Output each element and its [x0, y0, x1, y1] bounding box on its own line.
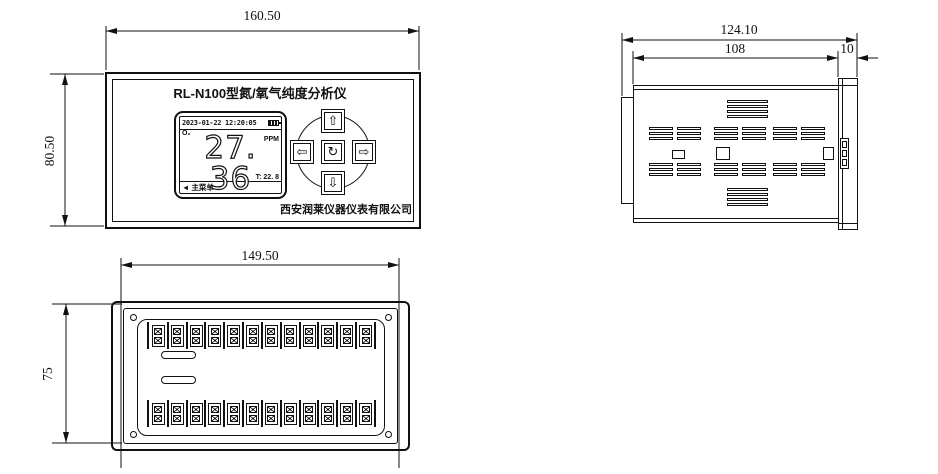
terminal-block: [300, 400, 319, 427]
terminal-screw-pair: [284, 325, 297, 347]
vent-slat: [742, 132, 766, 135]
screw-x-icon: [305, 406, 313, 413]
main-reading: 27. 36: [180, 133, 281, 194]
terminal-block: [149, 322, 168, 349]
dim-side-overall: 124.10: [709, 22, 769, 38]
vent-slat: [714, 132, 738, 135]
terminal-block: [318, 400, 337, 427]
terminal-block: [281, 400, 300, 427]
vent-group: [742, 127, 766, 140]
screw-x-icon: [173, 415, 181, 422]
left-arrow-icon: ⇦: [293, 143, 311, 161]
enter-button: ↻: [321, 140, 345, 164]
dim-side-bezel: 10: [833, 41, 861, 57]
vent-slat: [727, 198, 768, 201]
screw-x-icon: [211, 406, 219, 413]
vent-slat: [773, 137, 797, 140]
down-button: ⇩: [321, 171, 345, 195]
vent-slat: [649, 132, 673, 135]
screw-x-icon: [249, 406, 257, 413]
vent-group: [677, 163, 701, 176]
screw-x-icon: [211, 415, 219, 422]
up-button: ⇧: [321, 109, 345, 133]
terminal-screw-pair: [265, 325, 278, 347]
device-title: RL-N100型氮/氧气纯度分析仪: [105, 83, 415, 102]
dim-front-height: 80.50: [42, 121, 58, 181]
vent-group: [773, 127, 797, 140]
screw-x-icon: [173, 406, 181, 413]
screw-x-icon: [343, 415, 351, 422]
vent-slat: [801, 168, 825, 171]
terminal-screw-pair: [246, 325, 259, 347]
vent-slot: [161, 376, 196, 384]
vent-slat: [801, 132, 825, 135]
vent-slat: [801, 163, 825, 166]
screw-x-icon: [362, 328, 370, 335]
temperature-reading: T: 22. 8: [256, 174, 279, 181]
terminal-screw-pair: [227, 325, 240, 347]
terminal-block: [356, 322, 375, 349]
terminal-block: [281, 322, 300, 349]
screw-x-icon: [230, 415, 238, 422]
vent-slat: [714, 137, 738, 140]
mounting-latch: [823, 147, 834, 160]
terminal-row-bottom: [147, 400, 375, 427]
screw-x-icon: [286, 415, 294, 422]
vent-group: [649, 163, 673, 176]
vent-slat: [773, 132, 797, 135]
vent-slat: [714, 163, 738, 166]
cycle-icon: ↻: [324, 143, 342, 161]
vent-slat: [677, 137, 701, 140]
vent-group: [801, 127, 825, 140]
vent-slat: [649, 173, 673, 176]
vent-slat: [677, 132, 701, 135]
terminal-block: [168, 322, 187, 349]
terminal-block: [337, 322, 356, 349]
screw-x-icon: [305, 337, 313, 344]
side-connector: [840, 138, 849, 169]
screw-x-icon: [267, 415, 275, 422]
lcd-datetime: 2023-01-22 12:20:05: [182, 119, 256, 127]
screw-x-icon: [286, 406, 294, 413]
screw-x-icon: [324, 406, 332, 413]
terminal-screw-pair: [303, 325, 316, 347]
screw-x-icon: [211, 328, 219, 335]
terminal-block: [168, 400, 187, 427]
terminal-block: [187, 400, 206, 427]
terminal-screw-pair: [359, 403, 372, 425]
vent-slat: [727, 193, 768, 196]
terminal-screw-pair: [152, 325, 165, 347]
screw-x-icon: [343, 406, 351, 413]
dim-front-width: 160.50: [232, 8, 292, 24]
vent-slat: [727, 105, 768, 108]
vent-group: [714, 127, 738, 140]
screw-x-icon: [249, 328, 257, 335]
vent-slat: [773, 173, 797, 176]
screw-x-icon: [324, 415, 332, 422]
screw-x-icon: [154, 337, 162, 344]
dim-side-case: 108: [705, 41, 765, 57]
screw-x-icon: [192, 328, 200, 335]
vent-group: [742, 163, 766, 176]
vent-slat: [649, 168, 673, 171]
terminal-block: [205, 322, 224, 349]
corner-screw-icon: [130, 314, 137, 321]
screw-x-icon: [192, 415, 200, 422]
vent-group-top: [727, 100, 768, 118]
screw-x-icon: [305, 328, 313, 335]
screw-x-icon: [192, 406, 200, 413]
terminal-block: [356, 400, 375, 427]
screw-x-icon: [267, 328, 275, 335]
vent-slat: [727, 115, 768, 118]
vent-slat: [714, 127, 738, 130]
terminal-block: [205, 400, 224, 427]
terminal-block: [224, 322, 243, 349]
vent-slat: [742, 163, 766, 166]
dim-back-height: 75: [40, 354, 56, 394]
screw-x-icon: [154, 406, 162, 413]
mounting-latch: [672, 150, 685, 159]
screw-x-icon: [362, 415, 370, 422]
vent-slat: [742, 173, 766, 176]
screw-x-icon: [230, 406, 238, 413]
right-button: ⇨: [352, 140, 376, 164]
vent-slat: [727, 188, 768, 191]
vent-slat: [714, 173, 738, 176]
screw-x-icon: [286, 328, 294, 335]
technical-drawing: RL-N100型氮/氧气纯度分析仪 2023-01-22 12:20:05 O₂…: [0, 0, 938, 474]
terminal-screw-pair: [152, 403, 165, 425]
vent-slat: [677, 168, 701, 171]
screw-x-icon: [267, 337, 275, 344]
vent-group: [714, 163, 738, 176]
terminal-block: [224, 400, 243, 427]
vent-slat: [742, 168, 766, 171]
vent-slat: [773, 163, 797, 166]
screw-x-icon: [362, 406, 370, 413]
terminal-screw-pair: [190, 403, 203, 425]
bezel-top-line: [839, 85, 857, 86]
screw-x-icon: [154, 328, 162, 335]
vent-slot: [161, 351, 196, 359]
right-arrow-icon: ⇨: [355, 143, 373, 161]
lcd-body: O₂ PPM 27. 36 T: 22. 8: [180, 130, 281, 181]
terminal-screw-pair: [190, 325, 203, 347]
mounting-latch: [716, 147, 730, 160]
terminal-screw-pair: [265, 403, 278, 425]
down-arrow-icon: ⇩: [324, 174, 342, 192]
terminal-screw-pair: [208, 403, 221, 425]
lcd-display-area: 2023-01-22 12:20:05 O₂ PPM 27. 36 T: 22.…: [179, 116, 282, 194]
screw-x-icon: [324, 337, 332, 344]
terminal-screw-pair: [321, 325, 334, 347]
vent-group: [677, 127, 701, 140]
up-arrow-icon: ⇧: [324, 112, 342, 130]
lcd-header: 2023-01-22 12:20:05: [180, 117, 281, 130]
lcd-screen: 2023-01-22 12:20:05 O₂ PPM 27. 36 T: 22.…: [174, 111, 287, 199]
screw-x-icon: [286, 337, 294, 344]
vent-slat: [649, 163, 673, 166]
screw-x-icon: [230, 337, 238, 344]
terminal-block: [243, 322, 262, 349]
vent-slat: [677, 163, 701, 166]
terminal-block: [243, 400, 262, 427]
terminal-screw-pair: [171, 403, 184, 425]
vent-group-bottom: [727, 188, 768, 206]
dim-back-width: 149.50: [230, 248, 290, 264]
terminal-block: [149, 400, 168, 427]
terminal-screw-pair: [321, 403, 334, 425]
screw-x-icon: [192, 337, 200, 344]
vent-slat: [677, 127, 701, 130]
bezel-bottom-line: [839, 223, 857, 224]
case-bottom-lip-line: [634, 218, 838, 219]
vent-slat: [773, 168, 797, 171]
screw-x-icon: [230, 328, 238, 335]
terminal-row-top: [147, 322, 375, 349]
case-top-lip-line: [634, 89, 838, 90]
screw-x-icon: [305, 415, 313, 422]
terminal-block: [300, 322, 319, 349]
vent-slat: [727, 203, 768, 206]
screw-x-icon: [154, 415, 162, 422]
vent-group: [801, 163, 825, 176]
terminal-screw-pair: [171, 325, 184, 347]
left-button: ⇦: [290, 140, 314, 164]
terminal-screw-pair: [340, 325, 353, 347]
vent-slat: [742, 127, 766, 130]
terminal-screw-pair: [303, 403, 316, 425]
vent-slat: [677, 173, 701, 176]
corner-screw-icon: [130, 431, 137, 438]
screw-x-icon: [324, 328, 332, 335]
terminal-screw-pair: [246, 403, 259, 425]
terminal-block: [262, 322, 281, 349]
vent-slat: [727, 110, 768, 113]
vent-slat: [714, 168, 738, 171]
vent-slat: [773, 127, 797, 130]
vent-slat: [742, 137, 766, 140]
vent-slat: [649, 127, 673, 130]
screw-x-icon: [173, 337, 181, 344]
terminal-screw-pair: [208, 325, 221, 347]
vent-slat: [801, 127, 825, 130]
vent-slat: [801, 173, 825, 176]
vent-group: [773, 163, 797, 176]
screw-x-icon: [249, 337, 257, 344]
terminal-block: [318, 322, 337, 349]
battery-icon: [268, 120, 279, 126]
terminal-block: [262, 400, 281, 427]
screw-x-icon: [343, 328, 351, 335]
screw-x-icon: [267, 406, 275, 413]
terminal-screw-pair: [284, 403, 297, 425]
vent-slat: [727, 100, 768, 103]
company-name: 西安润莱仪器仪表有限公司: [250, 201, 412, 217]
vent-group: [649, 127, 673, 140]
terminal-screw-pair: [340, 403, 353, 425]
terminal-block: [337, 400, 356, 427]
vent-slat: [801, 137, 825, 140]
terminal-screw-pair: [227, 403, 240, 425]
screw-x-icon: [343, 337, 351, 344]
corner-screw-icon: [385, 314, 392, 321]
screw-x-icon: [173, 328, 181, 335]
terminal-screw-pair: [359, 325, 372, 347]
screw-x-icon: [249, 415, 257, 422]
corner-screw-icon: [385, 431, 392, 438]
screw-x-icon: [362, 337, 370, 344]
terminal-block: [187, 322, 206, 349]
vent-slat: [649, 137, 673, 140]
screw-x-icon: [211, 337, 219, 344]
